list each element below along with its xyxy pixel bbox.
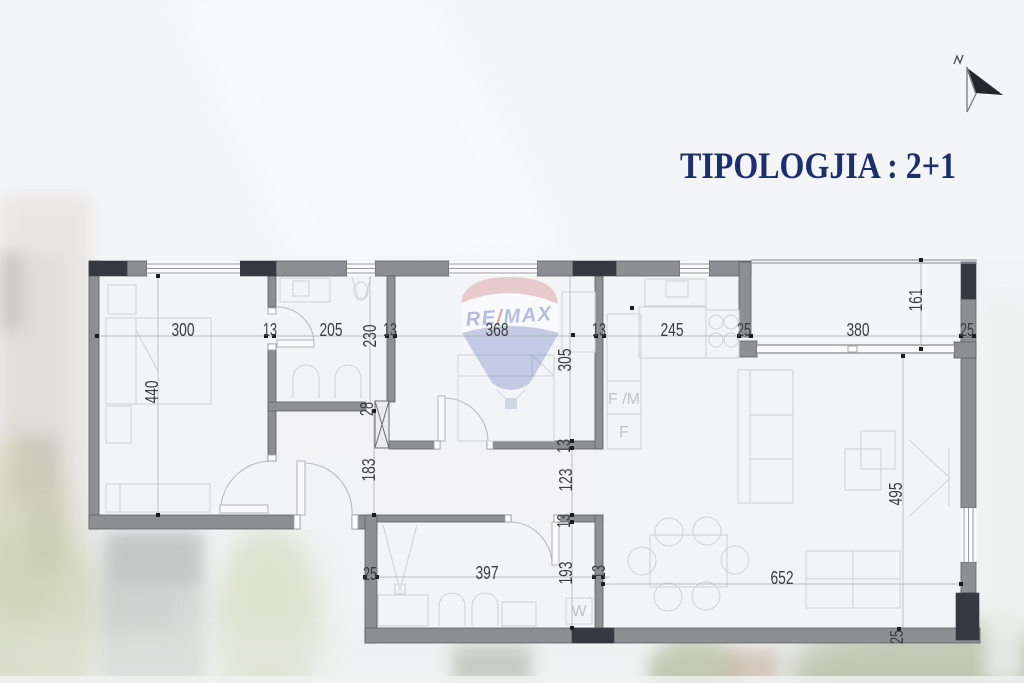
svg-text:25: 25 [363, 564, 377, 584]
svg-text:183: 183 [359, 459, 379, 482]
svg-text:28: 28 [357, 402, 377, 416]
svg-text:13: 13 [554, 514, 574, 528]
svg-text:245: 245 [661, 320, 684, 340]
svg-text:652: 652 [771, 568, 794, 588]
svg-text:440: 440 [142, 381, 162, 404]
svg-text:W: W [571, 603, 587, 620]
svg-text:25: 25 [960, 320, 974, 340]
svg-text:368: 368 [486, 320, 509, 340]
svg-text:13: 13 [554, 439, 574, 453]
svg-text:397: 397 [476, 563, 499, 583]
svg-text:305: 305 [555, 349, 575, 372]
svg-text:300: 300 [172, 320, 195, 340]
svg-text:161: 161 [906, 289, 926, 312]
svg-text:F /M: F /M [608, 391, 640, 408]
svg-text:205: 205 [320, 320, 343, 340]
svg-text:F: F [619, 424, 629, 441]
svg-text:25: 25 [737, 320, 751, 340]
svg-text:193: 193 [556, 562, 576, 585]
svg-text:13: 13 [589, 565, 609, 579]
svg-text:13: 13 [592, 320, 606, 340]
svg-text:25: 25 [887, 630, 907, 644]
svg-text:495: 495 [886, 483, 906, 506]
svg-text:230: 230 [360, 325, 380, 348]
svg-text:TIPOLOGJIA : 2+1: TIPOLOGJIA : 2+1 [680, 146, 956, 187]
svg-text:380: 380 [847, 320, 870, 340]
svg-text:123: 123 [556, 469, 576, 492]
svg-text:13: 13 [383, 320, 397, 340]
svg-text:13: 13 [263, 320, 277, 340]
